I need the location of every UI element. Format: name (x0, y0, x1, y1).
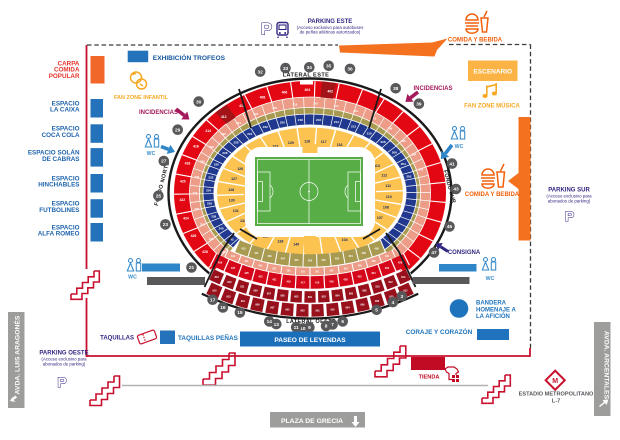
svg-text:220: 220 (280, 120, 285, 124)
svg-text:P: P (261, 20, 272, 39)
svg-text:45: 45 (447, 224, 453, 230)
svg-text:420: 420 (180, 180, 186, 184)
svg-text:15: 15 (237, 310, 243, 316)
svg-text:230: 230 (214, 163, 219, 167)
svg-text:COMIDA Y BEBIDA: COMIDA Y BEBIDA (448, 38, 503, 44)
svg-text:915: 915 (212, 290, 217, 293)
svg-text:422: 422 (179, 198, 185, 202)
svg-text:421: 421 (272, 278, 277, 282)
svg-text:M: M (552, 378, 558, 385)
svg-text:3: 3 (400, 294, 403, 300)
svg-text:313: 313 (231, 255, 236, 258)
svg-text:810: 810 (376, 286, 381, 289)
svg-text:110: 110 (386, 195, 392, 199)
svg-text:414: 414 (205, 129, 211, 133)
svg-text:LA AFICIÓN: LA AFICIÓN (476, 312, 510, 320)
svg-text:302: 302 (330, 269, 335, 272)
svg-text:322: 322 (253, 112, 258, 116)
svg-text:408: 408 (260, 96, 266, 100)
svg-text:236: 236 (207, 202, 212, 206)
svg-text:36: 36 (347, 67, 353, 73)
svg-text:415: 415 (315, 280, 320, 284)
svg-text:232: 232 (208, 175, 213, 179)
svg-text:WC: WC (147, 151, 156, 157)
svg-text:POPULAR: POPULAR (49, 73, 80, 80)
svg-text:218: 218 (298, 118, 303, 122)
svg-text:222: 222 (263, 125, 268, 129)
svg-text:AVDA. ARCENTALES: AVDA. ARCENTALES (603, 331, 610, 400)
svg-text:305: 305 (287, 269, 292, 272)
svg-text:111: 111 (385, 184, 391, 188)
svg-text:426: 426 (191, 234, 197, 238)
svg-text:240: 240 (219, 227, 224, 231)
svg-text:228: 228 (222, 151, 227, 155)
svg-text:418: 418 (185, 162, 191, 166)
svg-text:39: 39 (416, 101, 422, 107)
svg-text:911: 911 (241, 300, 246, 303)
svg-text:29: 29 (175, 127, 181, 133)
svg-text:807: 807 (267, 292, 272, 295)
svg-text:HOMENAJE A: HOMENAJE A (476, 307, 516, 313)
svg-text:406: 406 (282, 90, 288, 94)
svg-text:L-7: L-7 (552, 399, 560, 405)
svg-text:303: 303 (301, 270, 306, 273)
svg-text:815: 815 (215, 276, 220, 279)
svg-text:806: 806 (349, 292, 354, 295)
svg-text:301: 301 (315, 270, 320, 273)
svg-text:304: 304 (412, 153, 417, 157)
svg-text:120: 120 (288, 141, 294, 145)
svg-text:332: 332 (195, 175, 200, 179)
svg-text:336: 336 (194, 207, 199, 211)
svg-text:407: 407 (281, 257, 286, 261)
svg-text:PLAZA DE GRECIA: PLAZA DE GRECIA (281, 418, 343, 425)
svg-text:306: 306 (401, 139, 406, 143)
svg-text:38: 38 (393, 86, 399, 92)
svg-text:309: 309 (258, 264, 263, 267)
svg-text:422: 422 (357, 275, 362, 279)
svg-text:903: 903 (300, 309, 305, 312)
svg-text:429: 429 (218, 261, 223, 265)
svg-text:234: 234 (206, 188, 211, 192)
svg-text:412: 412 (221, 115, 227, 119)
svg-text:812: 812 (389, 281, 394, 284)
svg-text:116: 116 (337, 143, 343, 147)
svg-text:17: 17 (210, 297, 216, 303)
svg-text:23: 23 (163, 222, 169, 228)
svg-text:423: 423 (258, 275, 263, 279)
svg-text:402: 402 (327, 90, 333, 94)
svg-text:904: 904 (346, 307, 351, 310)
svg-text:TIENDA: TIENDA (419, 375, 440, 381)
svg-text:302: 302 (419, 168, 424, 172)
svg-text:33: 33 (283, 66, 289, 72)
svg-text:7: 7 (331, 322, 334, 328)
svg-text:CONSIGNA: CONSIGNA (448, 250, 481, 256)
svg-text:418: 418 (329, 279, 334, 283)
svg-text:34: 34 (307, 65, 313, 71)
svg-text:6: 6 (341, 319, 344, 325)
svg-text:abonados de parking): abonados de parking) (43, 361, 86, 366)
svg-text:202: 202 (406, 174, 411, 178)
svg-text:306: 306 (358, 264, 363, 267)
svg-text:216: 216 (316, 118, 321, 122)
svg-text:127: 127 (231, 177, 237, 181)
svg-text:808: 808 (362, 289, 367, 292)
svg-text:304: 304 (344, 267, 349, 270)
svg-text:316: 316 (313, 102, 318, 106)
svg-text:206: 206 (392, 150, 397, 154)
svg-text:803: 803 (294, 296, 299, 299)
svg-text:340: 340 (209, 237, 214, 241)
svg-text:427: 427 (231, 266, 236, 270)
svg-text:401: 401 (321, 258, 326, 262)
svg-text:16: 16 (220, 305, 226, 311)
svg-text:408: 408 (374, 247, 379, 251)
svg-text:425: 425 (244, 271, 249, 275)
svg-text:208: 208 (380, 140, 385, 144)
svg-text:TAQUILLAS: TAQUILLAS (100, 336, 134, 342)
svg-text:130: 130 (229, 199, 235, 203)
svg-text:328: 328 (209, 145, 214, 149)
svg-text:104: 104 (342, 238, 348, 242)
svg-text:417: 417 (301, 280, 306, 284)
svg-text:32: 32 (258, 69, 264, 75)
svg-text:802: 802 (322, 296, 327, 299)
svg-text:330: 330 (200, 159, 205, 163)
svg-text:419: 419 (286, 279, 291, 283)
svg-text:LATERAL ESTE: LATERAL ESTE (283, 73, 330, 79)
svg-text:902: 902 (331, 308, 336, 311)
svg-text:809: 809 (254, 289, 259, 292)
svg-text:FUTBOLINES: FUTBOLINES (39, 207, 79, 214)
svg-text:813: 813 (227, 281, 232, 284)
svg-text:406: 406 (362, 251, 367, 255)
svg-text:128: 128 (228, 188, 234, 192)
svg-text:907: 907 (270, 307, 275, 310)
svg-text:224: 224 (247, 132, 252, 136)
svg-text:210: 210 (367, 131, 372, 135)
svg-text:COCA COLA: COCA COLA (42, 132, 80, 139)
svg-text:47: 47 (431, 250, 437, 256)
svg-text:901: 901 (316, 309, 321, 312)
svg-text:HINCHABLES: HINCHABLES (38, 182, 79, 189)
svg-text:311: 311 (245, 260, 250, 263)
svg-text:308: 308 (388, 127, 393, 131)
svg-text:TAQUILLAS PEÑAS: TAQUILLAS PEÑAS (178, 333, 239, 342)
svg-text:INCIDENCIAS: INCIDENCIAS (413, 86, 452, 92)
svg-text:112: 112 (381, 174, 387, 178)
svg-text:338: 338 (200, 222, 205, 226)
svg-text:8: 8 (325, 324, 328, 330)
svg-text:EXHIBICIÓN TROFEOS: EXHIBICIÓN TROFEOS (153, 53, 226, 62)
svg-text:413: 413 (241, 247, 246, 251)
svg-text:226: 226 (234, 141, 239, 145)
svg-text:21: 21 (189, 265, 195, 271)
svg-text:FAN ZONE INFANTIL: FAN ZONE INFANTIL (114, 95, 169, 101)
svg-text:ESTADIO METROPOLITANO: ESTADIO METROPOLITANO (519, 392, 594, 398)
svg-text:308: 308 (372, 260, 377, 263)
svg-text:424: 424 (371, 271, 376, 275)
svg-text:403: 403 (308, 259, 313, 263)
svg-text:CORAJE Y CORAZÓN: CORAJE Y CORAZÓN (406, 327, 473, 336)
svg-text:801: 801 (308, 296, 313, 299)
svg-text:126: 126 (237, 167, 243, 171)
svg-text:428: 428 (398, 261, 403, 265)
svg-text:908: 908 (375, 300, 380, 303)
svg-text:35: 35 (326, 64, 332, 70)
svg-text:402: 402 (335, 257, 340, 261)
svg-text:814: 814 (401, 276, 406, 279)
svg-text:11: 11 (294, 325, 299, 331)
svg-text:ESCENARIO: ESCENARIO (473, 69, 512, 76)
svg-text:WC: WC (128, 275, 137, 281)
svg-text:906: 906 (360, 304, 365, 307)
svg-text:25: 25 (156, 194, 162, 200)
svg-text:409: 409 (267, 254, 272, 258)
svg-text:420: 420 (343, 278, 348, 282)
svg-text:13: 13 (274, 322, 280, 328)
svg-text:AVDA. LUIS ARAGONÉS: AVDA. LUIS ARAGONÉS (13, 315, 22, 394)
svg-text:204: 204 (401, 162, 406, 166)
svg-text:DE CABRAS: DE CABRAS (42, 156, 79, 163)
svg-text:PASEO DE LEYENDAS: PASEO DE LEYENDAS (274, 337, 346, 344)
svg-text:310: 310 (385, 255, 390, 258)
svg-text:118: 118 (304, 139, 310, 143)
svg-text:318: 318 (293, 102, 298, 106)
svg-text:27: 27 (161, 159, 167, 165)
svg-text:334: 334 (193, 191, 198, 195)
svg-text:312: 312 (353, 109, 358, 113)
svg-text:804: 804 (335, 294, 340, 297)
svg-text:909: 909 (255, 304, 260, 307)
svg-text:LA CAIXA: LA CAIXA (50, 107, 80, 114)
svg-text:212: 212 (351, 125, 356, 129)
svg-text:de peñas atléticas autorizados: de peñas atléticas autorizados) (300, 30, 361, 35)
svg-text:811: 811 (240, 286, 245, 289)
svg-text:WC: WC (455, 144, 464, 150)
svg-text:9: 9 (308, 325, 311, 331)
svg-text:INCIDENCIAS: INCIDENCIAS (139, 110, 178, 116)
svg-text:411: 411 (254, 251, 259, 255)
svg-text:314: 314 (334, 104, 339, 108)
svg-text:WC: WC (486, 276, 495, 282)
svg-text:913: 913 (226, 295, 231, 298)
svg-text:404: 404 (304, 88, 310, 92)
svg-text:905: 905 (285, 308, 290, 311)
svg-text:108: 108 (383, 206, 389, 210)
svg-text:324: 324 (236, 121, 241, 125)
svg-text:416: 416 (193, 144, 199, 148)
svg-text:138: 138 (277, 240, 283, 244)
svg-text:14: 14 (267, 319, 273, 325)
svg-text:abonados de parking): abonados de parking) (548, 198, 591, 203)
svg-text:43: 43 (453, 187, 459, 193)
svg-text:140: 140 (293, 243, 299, 247)
svg-text:426: 426 (385, 266, 390, 270)
svg-text:P: P (57, 374, 66, 390)
svg-text:131: 131 (233, 209, 239, 213)
svg-text:BANDERA: BANDERA (476, 301, 507, 307)
svg-text:805: 805 (281, 294, 286, 297)
svg-text:30: 30 (196, 99, 202, 105)
svg-text:424: 424 (183, 217, 189, 221)
svg-text:238: 238 (211, 214, 216, 218)
svg-text:117: 117 (321, 140, 327, 144)
svg-text:107: 107 (377, 216, 383, 220)
svg-text:41: 41 (449, 161, 455, 167)
svg-text:5: 5 (375, 308, 378, 314)
svg-text:405: 405 (294, 258, 299, 262)
svg-text:326: 326 (221, 132, 226, 136)
svg-text:214: 214 (334, 120, 339, 124)
svg-text:307: 307 (272, 267, 277, 270)
svg-text:FAN ZONE MÚSICA: FAN ZONE MÚSICA (464, 103, 520, 110)
svg-text:P: P (565, 208, 574, 224)
svg-text:428: 428 (202, 250, 208, 254)
svg-text:4: 4 (392, 300, 395, 306)
svg-text:ALFA ROMEO: ALFA ROMEO (38, 231, 80, 238)
svg-text:320: 320 (272, 106, 277, 110)
svg-text:404: 404 (348, 254, 353, 258)
svg-text:COMIDA Y BEBIDA: COMIDA Y BEBIDA (465, 192, 520, 198)
